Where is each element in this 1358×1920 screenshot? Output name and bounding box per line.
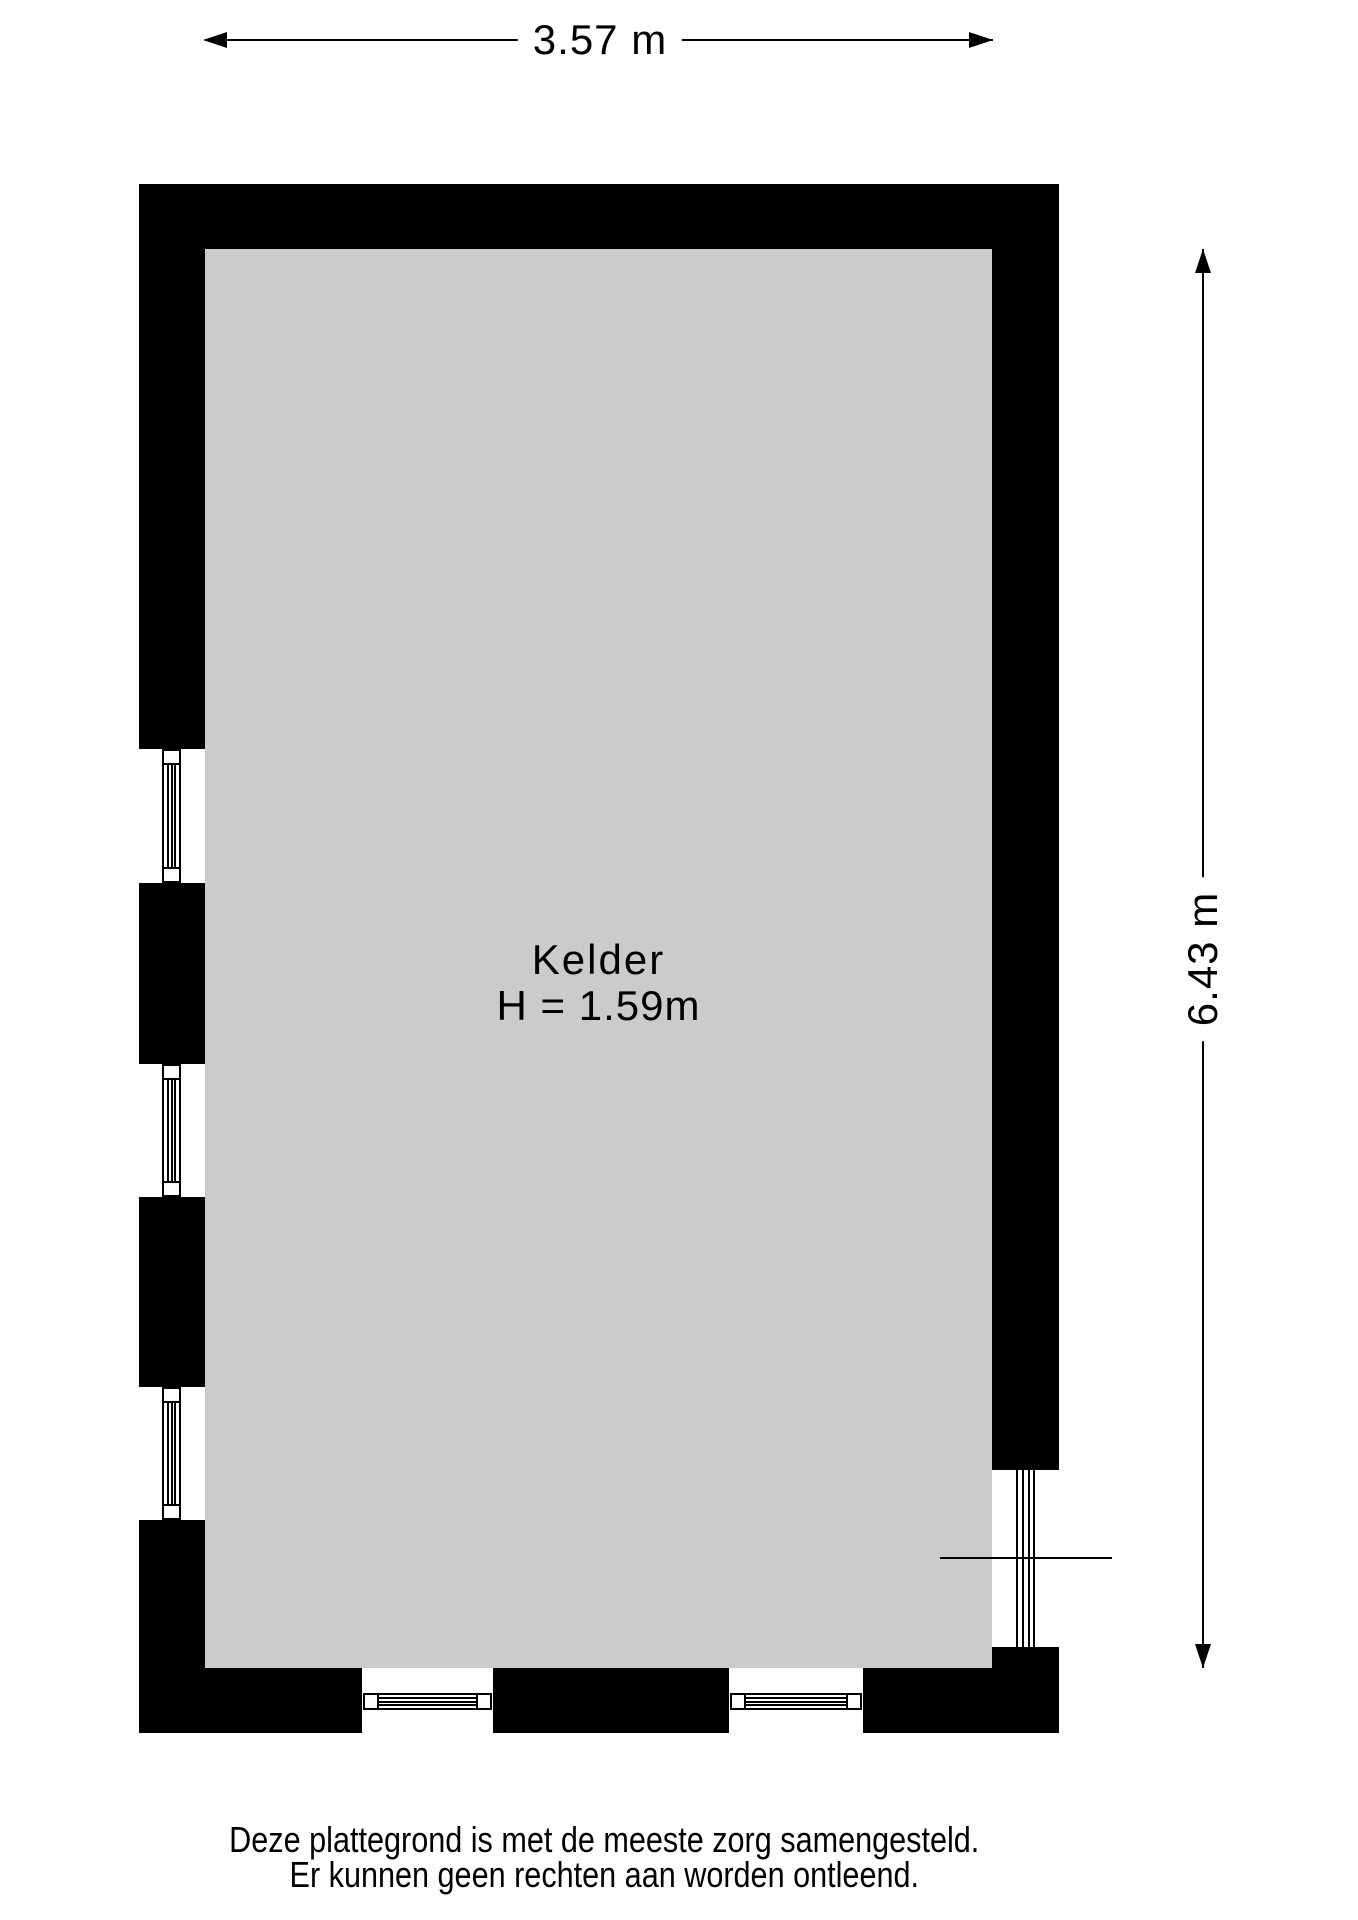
window-glazing-line bbox=[379, 1697, 476, 1699]
wall-segment bbox=[493, 1668, 729, 1733]
window-glazing-line bbox=[167, 1080, 169, 1181]
window-frame-divider bbox=[164, 867, 179, 869]
window-frame-divider bbox=[846, 1695, 848, 1708]
wall-segment bbox=[139, 883, 205, 1064]
window-symbol bbox=[162, 1387, 181, 1520]
window-symbol bbox=[162, 1064, 181, 1197]
window-glazing-line bbox=[174, 1080, 176, 1181]
window-glazing-line bbox=[379, 1704, 476, 1706]
arrowhead-right-icon bbox=[969, 32, 993, 48]
window-glazing-line bbox=[171, 1080, 173, 1181]
window-glazing-line bbox=[174, 765, 176, 867]
wall-segment bbox=[863, 1668, 1059, 1733]
window-frame-divider bbox=[164, 1181, 179, 1183]
window-symbol bbox=[730, 1693, 862, 1710]
room-ceiling-height: H = 1.59m bbox=[205, 983, 992, 1029]
disclaimer-line-2: Er kunnen geen rechten aan worden ontlee… bbox=[289, 1857, 918, 1892]
hatch-line bbox=[940, 1557, 1112, 1559]
window-glazing-line bbox=[167, 1403, 169, 1504]
room-name: Kelder bbox=[205, 937, 992, 983]
window-frame-divider bbox=[476, 1695, 478, 1708]
width-dimension-label: 3.57 m bbox=[518, 16, 682, 64]
window-glazing-line bbox=[171, 1403, 173, 1504]
height-dimension-label: 6.43 m bbox=[1179, 877, 1227, 1041]
wall-segment bbox=[139, 1197, 205, 1387]
window-glazing-line bbox=[746, 1701, 846, 1703]
room-label-block: Kelder H = 1.59m bbox=[205, 937, 992, 1029]
floorplan-page: 3.57 m 6.43 m Kelder H = 1.59m Deze plat… bbox=[0, 0, 1358, 1920]
wall-segment bbox=[139, 184, 1059, 249]
arrowhead-up-icon bbox=[1195, 249, 1211, 273]
window-glazing-line bbox=[167, 765, 169, 867]
arrowhead-down-icon bbox=[1195, 1644, 1211, 1668]
window-glazing-line bbox=[171, 765, 173, 867]
wall-segment bbox=[992, 184, 1059, 1470]
disclaimer-line-1: Deze plattegrond is met de meeste zorg s… bbox=[229, 1822, 979, 1857]
window-frame-divider bbox=[164, 1504, 179, 1506]
arrowhead-left-icon bbox=[203, 32, 227, 48]
window-glazing-line bbox=[174, 1403, 176, 1504]
window-glazing-line bbox=[746, 1697, 846, 1699]
wall-segment bbox=[139, 1668, 362, 1733]
window-symbol bbox=[363, 1693, 492, 1710]
wall-segment bbox=[139, 184, 205, 749]
window-symbol bbox=[162, 749, 181, 883]
disclaimer-block: Deze plattegrond is met de meeste zorg s… bbox=[4, 1822, 1204, 1892]
window-glazing-line bbox=[379, 1701, 476, 1703]
window-glazing-line bbox=[746, 1704, 846, 1706]
